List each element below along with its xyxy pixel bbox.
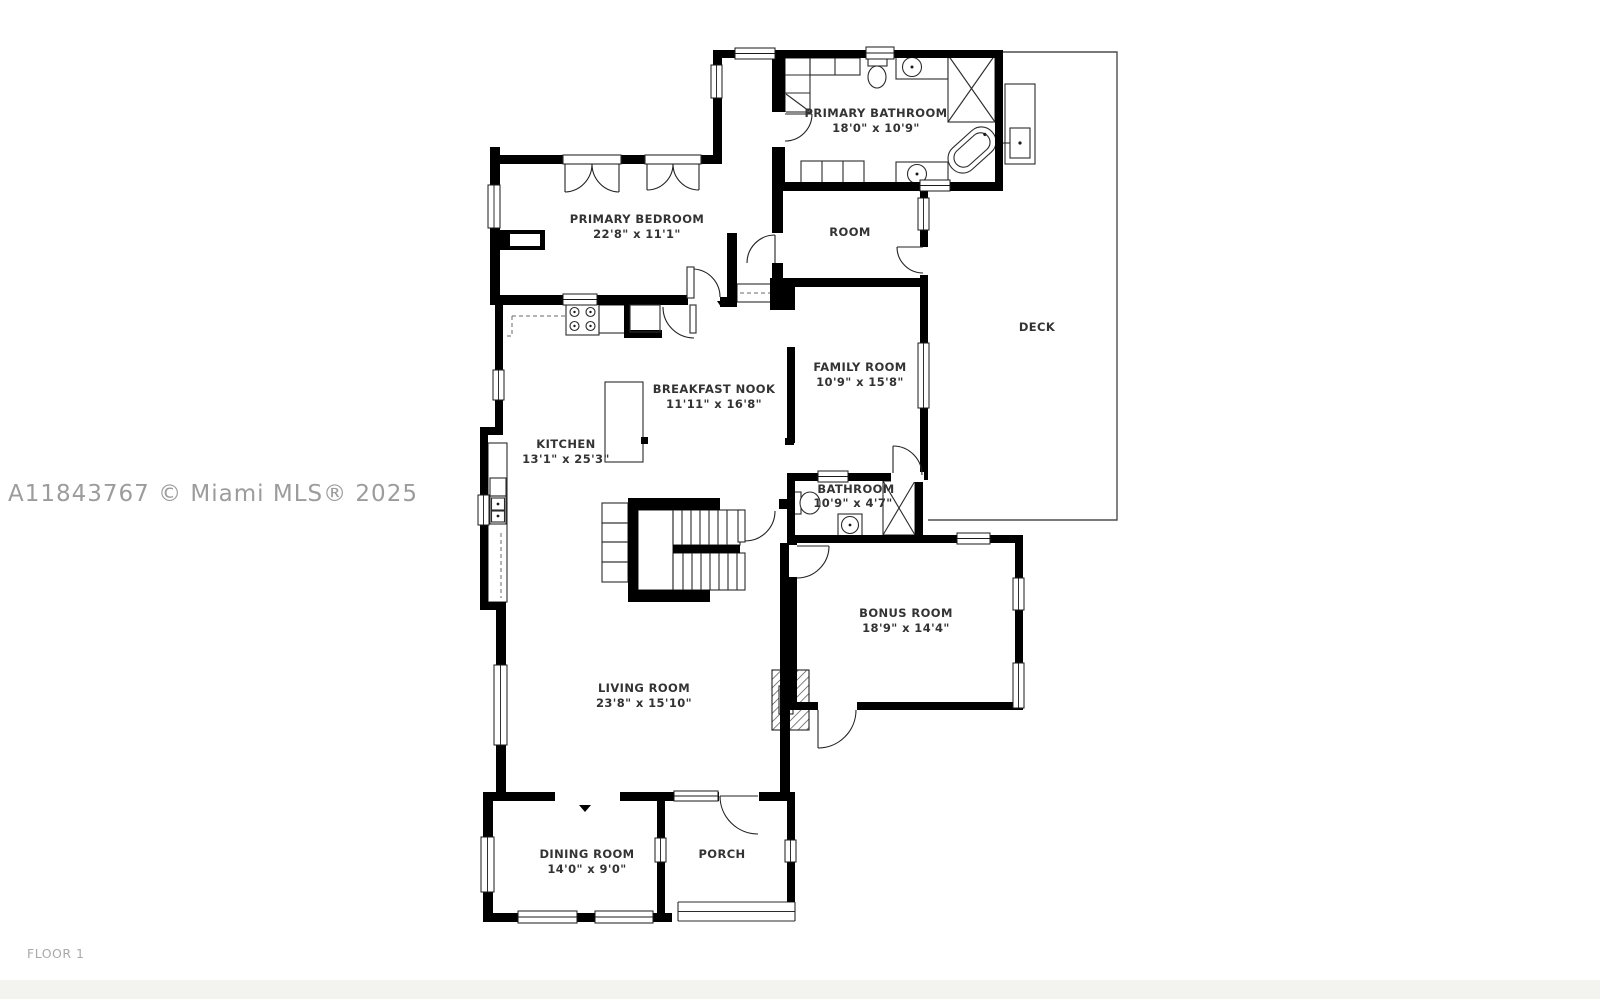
room-label-deck: DECK — [1019, 320, 1056, 334]
room-label-dining-room: DINING ROOM — [539, 847, 634, 861]
room-label-family-room: FAMILY ROOM — [813, 360, 906, 374]
room-dims-family-room: 10'9" x 15'8" — [816, 375, 904, 389]
window — [595, 911, 653, 923]
window — [918, 343, 929, 408]
window — [478, 495, 489, 525]
room-label-kitchen: KITCHEN — [536, 437, 595, 451]
footer-band — [0, 980, 1600, 999]
room-label-porch: PORCH — [698, 847, 745, 861]
window — [488, 185, 500, 228]
window — [711, 65, 722, 98]
mls-watermark: A11843767 © Miami MLS® 2025 — [8, 481, 418, 507]
room-dims-primary-bathroom: 18'0" x 10'9" — [832, 121, 920, 135]
window — [866, 47, 894, 59]
window — [674, 791, 718, 801]
room-dims-dining-room: 14'0" x 9'0" — [547, 862, 626, 876]
window — [493, 370, 504, 400]
room-dims-primary-bedroom: 22'8" x 11'1" — [593, 227, 681, 241]
window — [735, 48, 775, 59]
room-label-breakfast-nook: BREAKFAST NOOK — [653, 382, 776, 396]
window — [920, 180, 950, 191]
room-label-primary-bedroom: PRIMARY BEDROOM — [570, 212, 704, 226]
toilet-symbol — [868, 57, 887, 88]
sink-symbol — [838, 514, 862, 537]
window — [957, 533, 990, 544]
room-label-primary-bathroom: PRIMARY BATHROOM — [805, 106, 948, 120]
window — [818, 471, 848, 482]
window — [1013, 663, 1024, 708]
room-dims-breakfast-nook: 11'11" x 16'8" — [666, 397, 762, 411]
sink-symbol — [896, 55, 948, 79]
room-dims-bonus-room: 18'9" x 14'4" — [862, 621, 950, 635]
shower-symbol — [948, 55, 995, 122]
window — [1013, 578, 1024, 610]
window — [518, 911, 577, 923]
room-label-living-room: LIVING ROOM — [598, 681, 690, 695]
stove-symbol — [566, 303, 599, 335]
room-dims-living-room: 23'8" x 15'10" — [596, 696, 692, 710]
room-label-room: ROOM — [829, 225, 870, 239]
window — [655, 838, 666, 862]
room-dims-kitchen: 13'1" x 25'3" — [522, 452, 610, 466]
window — [918, 198, 929, 230]
floorplan-canvas: PRIMARY BATHROOM 18'0" x 10'9" PRIMARY B… — [0, 0, 1600, 999]
room-label-bathroom: BATHROOM — [817, 482, 894, 496]
room-label-bonus-room: BONUS ROOM — [859, 606, 953, 620]
window — [481, 837, 494, 892]
window — [494, 665, 507, 745]
window — [785, 840, 796, 862]
room-dims-bathroom: 10'9" x 4'7" — [813, 496, 892, 510]
floor-label: FLOOR 1 — [27, 946, 85, 961]
floorplan-page: PRIMARY BATHROOM 18'0" x 10'9" PRIMARY B… — [0, 0, 1600, 999]
window — [563, 294, 597, 305]
